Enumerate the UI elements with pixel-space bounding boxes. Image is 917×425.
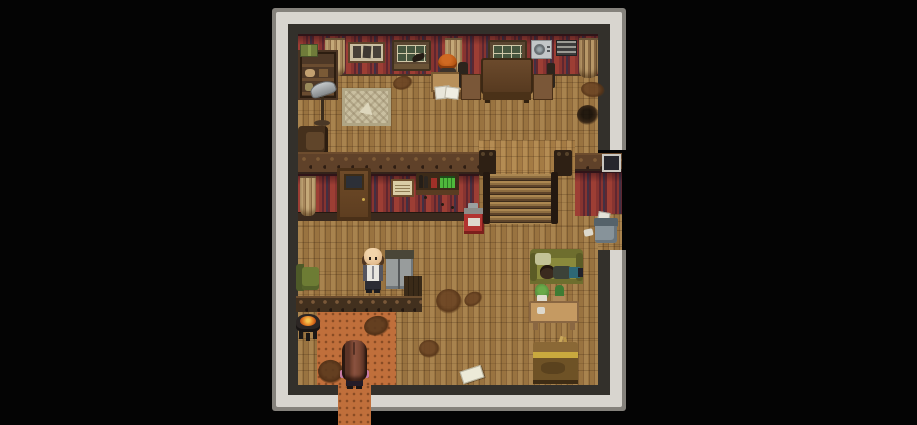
clerk-npc[interactable] (361, 246, 385, 294)
table-cup (537, 307, 545, 314)
crate-base (533, 380, 578, 384)
trash-bin[interactable] (592, 214, 620, 244)
desk-paper-2 (444, 86, 459, 100)
window-left-sill (394, 64, 429, 69)
bottle-dark-1 (419, 175, 423, 188)
crate-knot (541, 362, 565, 374)
clerk-head (364, 248, 382, 265)
bar-counter[interactable] (296, 296, 422, 312)
brazier[interactable] (295, 311, 321, 341)
clerk-eye-right (375, 257, 377, 260)
green-bottle-pack (440, 176, 455, 188)
rug-motif (359, 101, 375, 116)
bottle-dark-2 (424, 176, 428, 188)
green-kit-box (300, 44, 318, 57)
screenshot-stage (0, 0, 917, 425)
air-conditioner (531, 40, 552, 59)
staircase[interactable] (490, 174, 551, 224)
plant-table-leg-left (533, 322, 538, 330)
clerk-eye-left (369, 257, 371, 260)
window-left (392, 40, 431, 71)
dining-chair-right (533, 74, 553, 100)
sleeper-feet (578, 268, 583, 277)
desk-npc-hair (438, 54, 457, 69)
vending-box[interactable] (464, 203, 484, 236)
clerk-vest-right (379, 265, 383, 281)
dining-chair-left (461, 74, 481, 100)
wooden-crate[interactable] (533, 336, 578, 384)
shelf-box (319, 69, 328, 77)
vending-label (468, 218, 480, 226)
bottle-shelf-lip (416, 190, 459, 195)
shelf-board-1 (302, 64, 334, 67)
wall-spot-2 (441, 203, 444, 206)
photo-1 (353, 46, 361, 58)
passage-window (602, 154, 621, 172)
passage-wall (575, 171, 622, 216)
stair-rail-left (483, 172, 490, 224)
picture-frame (348, 42, 385, 63)
wall-spot-3 (451, 206, 454, 209)
sign-text-lines (395, 183, 410, 193)
curtain-right (579, 38, 598, 78)
clerk-foot-left (366, 289, 372, 293)
mid-wall-cornice (298, 152, 479, 174)
ac-button-1 (547, 46, 550, 48)
plant-table-leg-right (570, 322, 575, 330)
plant-table (529, 284, 579, 332)
floor-lamp (310, 82, 338, 130)
ac-fan (534, 44, 545, 55)
kit-box-strap (308, 45, 311, 56)
player-hair (342, 340, 367, 381)
sleeping-person[interactable] (538, 263, 583, 283)
clerk-foot-right (374, 289, 380, 293)
shelf-sack (305, 69, 315, 77)
cabinet-top (385, 250, 414, 259)
door-knob (362, 198, 365, 201)
interior-door[interactable] (337, 168, 371, 221)
red-canister (431, 178, 437, 188)
green-chair-seat (302, 267, 319, 290)
floor-hole (577, 105, 599, 125)
brazier-leg-left (299, 331, 303, 339)
cabinet-door-split (398, 259, 400, 289)
table-top (481, 58, 533, 94)
bottle-shelf (416, 173, 459, 197)
player-hair-part (353, 342, 355, 355)
bin-body (595, 226, 617, 243)
table-apron (483, 92, 531, 100)
clerk-vest-left (363, 265, 367, 281)
armchair-seat (306, 132, 324, 150)
menu-sign[interactable] (391, 179, 414, 197)
stair-rail-right (551, 172, 558, 224)
brazier-leg-right (313, 331, 317, 339)
clerk-shirt-placket (372, 266, 374, 279)
player-character[interactable] (340, 339, 369, 389)
exit-path[interactable] (338, 385, 371, 425)
wall-spot-1 (424, 196, 427, 199)
photo-2 (363, 46, 372, 59)
brazier-fire (300, 316, 316, 326)
ac-button-2 (547, 50, 550, 52)
mid-wall-drape (300, 176, 316, 216)
dining-table (481, 58, 533, 104)
mid-wall-baseboard (298, 212, 479, 221)
photo-3 (373, 46, 381, 58)
wall-vent (556, 40, 577, 56)
brazier-leg-mid (306, 333, 310, 341)
green-armchair (296, 264, 320, 294)
door-window (344, 174, 364, 190)
rug (342, 88, 391, 126)
